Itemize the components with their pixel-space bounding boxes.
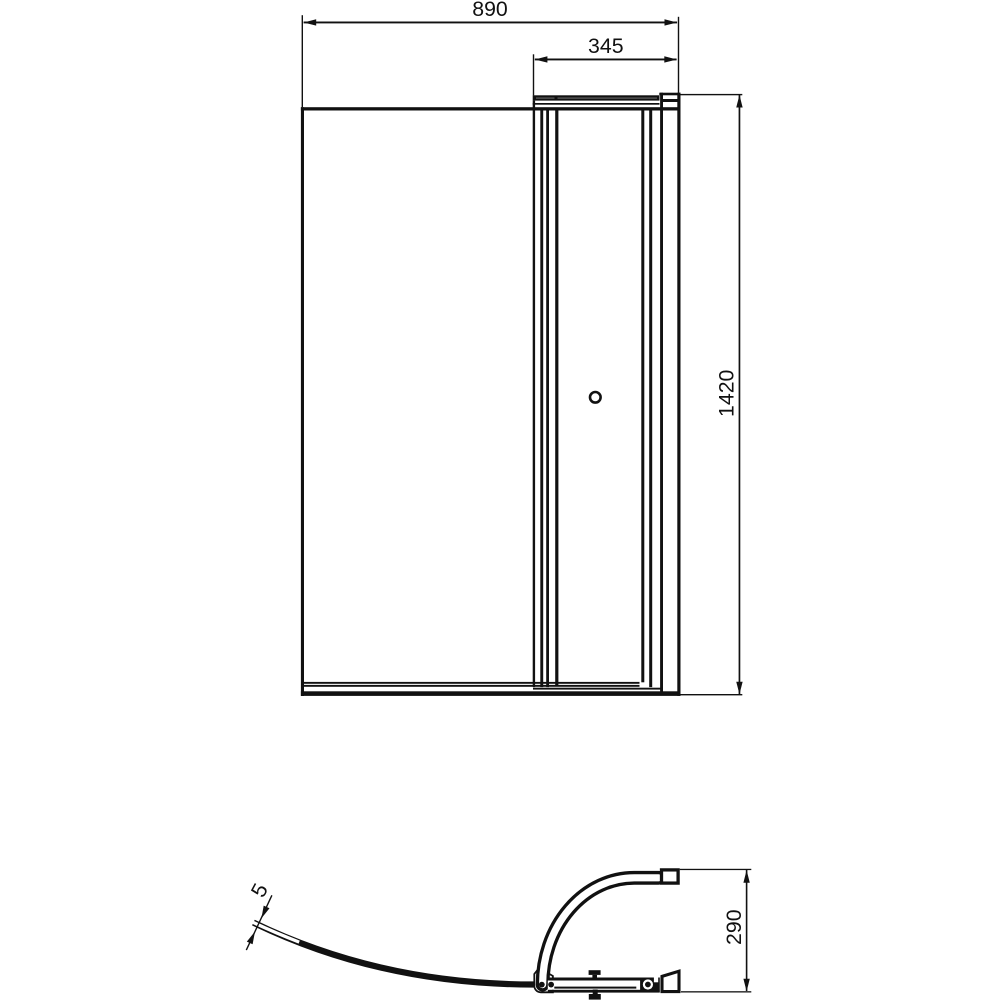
svg-text:890: 890 bbox=[472, 0, 508, 21]
svg-text:1420: 1420 bbox=[714, 369, 738, 417]
svg-text:290: 290 bbox=[722, 909, 746, 945]
svg-text:345: 345 bbox=[588, 34, 624, 58]
